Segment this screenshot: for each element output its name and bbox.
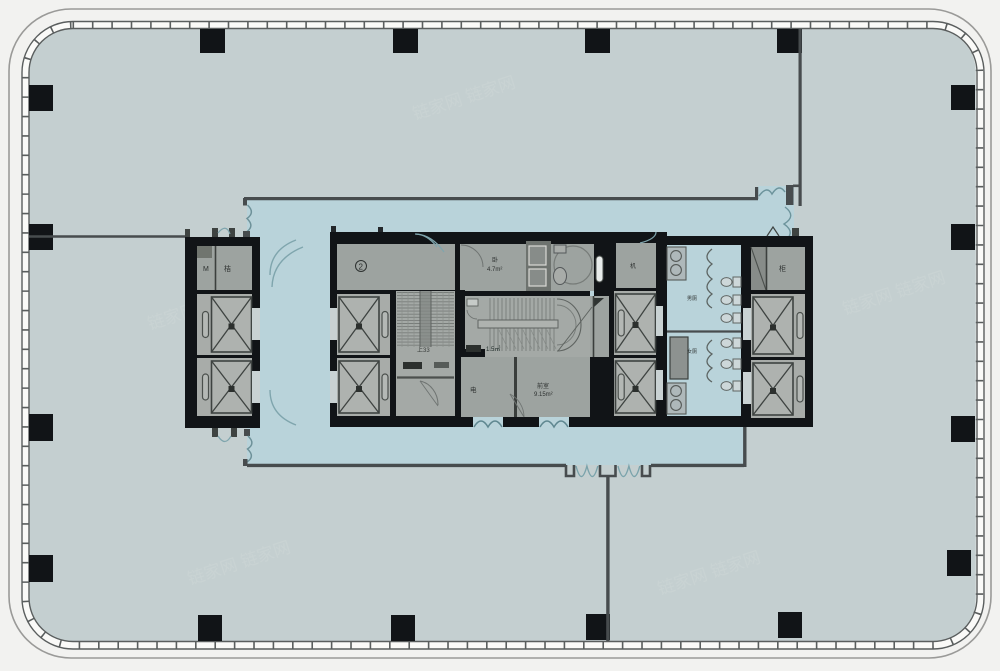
svg-text:M: M [203,266,209,273]
svg-text:卧: 卧 [492,256,498,264]
svg-text:1.5㎡: 1.5㎡ [486,345,500,353]
svg-text:男厕: 男厕 [687,296,697,302]
svg-text:前室: 前室 [537,382,549,390]
svg-text:女厕: 女厕 [687,348,697,355]
svg-text:4.7m²: 4.7m² [487,267,502,273]
svg-text:2: 2 [359,263,364,272]
svg-text:柜: 柜 [779,264,786,273]
svg-text:机: 机 [630,262,636,270]
svg-text:桔: 桔 [224,264,231,273]
svg-text:上33: 上33 [417,346,430,354]
svg-text:9.15m²: 9.15m² [534,392,553,398]
svg-text:电: 电 [470,385,477,394]
